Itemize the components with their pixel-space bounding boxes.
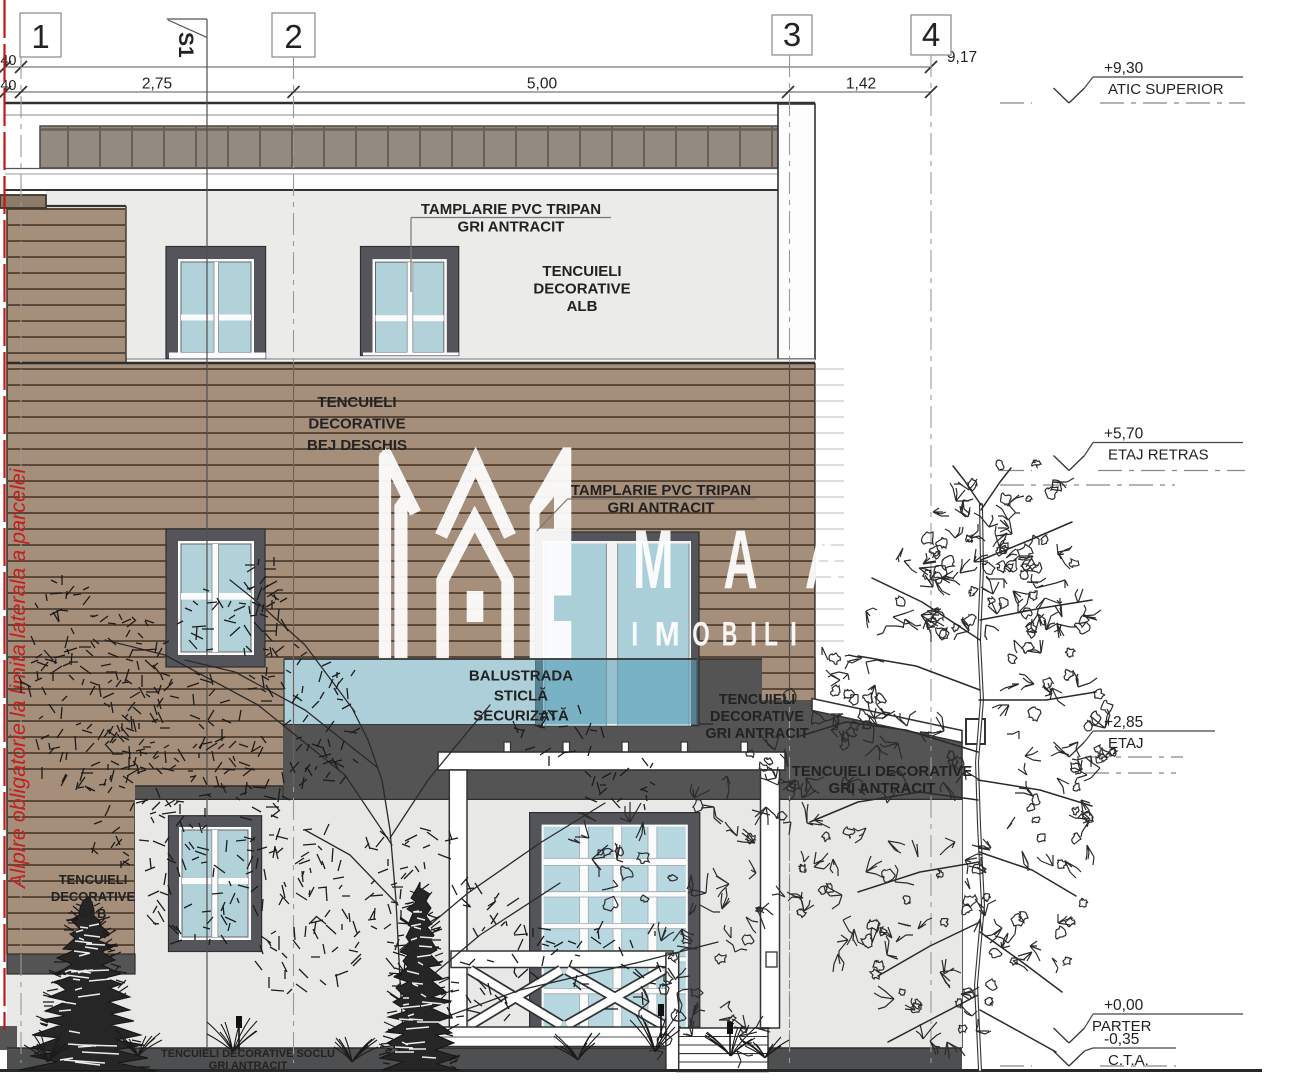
svg-text:1,42: 1,42 (846, 76, 876, 93)
svg-text:S1: S1 (174, 32, 197, 58)
svg-text:DECORATIVE: DECORATIVE (308, 416, 405, 433)
svg-text:ATIC SUPERIOR: ATIC SUPERIOR (1108, 81, 1224, 98)
svg-text:TENCUIELI: TENCUIELI (542, 263, 621, 280)
svg-text:BEJ DESCHIS: BEJ DESCHIS (307, 437, 407, 454)
svg-text:TENCUIELI: TENCUIELI (59, 872, 128, 887)
svg-text:DECORATIVE: DECORATIVE (533, 281, 630, 298)
svg-text:4: 4 (922, 16, 940, 53)
svg-text:R: R (889, 616, 906, 654)
svg-text:3: 3 (783, 16, 801, 53)
svg-text:DECORATIVE: DECORATIVE (710, 709, 804, 725)
svg-text:BALUSTRADA: BALUSTRADA (469, 668, 573, 685)
svg-text:ALB: ALB (567, 298, 598, 315)
svg-text:GRI ANTRACIT: GRI ANTRACIT (705, 726, 809, 742)
svg-text:SECURIZATĂ: SECURIZATĂ (473, 708, 569, 725)
svg-text:GRI ANTRACIT: GRI ANTRACIT (829, 780, 936, 797)
svg-text:ALB: ALB (80, 906, 107, 921)
svg-text:40: 40 (0, 53, 16, 69)
svg-text:STICLĂ: STICLĂ (494, 688, 548, 705)
svg-text:DECORATIVE: DECORATIVE (51, 889, 136, 904)
svg-text:I: I (631, 616, 638, 654)
svg-text:1: 1 (31, 18, 49, 55)
svg-text:GRI ANTRACIT: GRI ANTRACIT (209, 1060, 288, 1072)
svg-text:+0,00: +0,00 (1104, 997, 1144, 1014)
svg-text:TENCUIELI: TENCUIELI (719, 692, 796, 708)
svg-text:TENCUIELI DECORATIVE: TENCUIELI DECORATIVE (792, 763, 973, 780)
svg-text:L: L (764, 616, 778, 654)
svg-text:B: B (722, 616, 737, 654)
svg-text:5,00: 5,00 (527, 76, 558, 93)
svg-text:40: 40 (0, 78, 16, 94)
svg-text:I: I (790, 616, 797, 654)
svg-text:-0,35: -0,35 (1104, 1031, 1139, 1048)
svg-text:O: O (692, 616, 709, 654)
svg-text:A: A (805, 512, 842, 606)
svg-text:TAMPLARIE PVC TRIPAN: TAMPLARIE PVC TRIPAN (421, 201, 601, 218)
svg-text:M: M (633, 512, 674, 606)
svg-text:2: 2 (284, 18, 302, 55)
svg-text:GRI ANTRACIT: GRI ANTRACIT (458, 219, 565, 236)
svg-text:TENCUIELI: TENCUIELI (317, 394, 396, 411)
svg-text:Alipire obligatorie la limita: Alipire obligatorie la limita laterala a… (6, 467, 30, 890)
svg-text:+5,70: +5,70 (1104, 426, 1144, 443)
svg-text:M: M (655, 615, 680, 653)
svg-text:TENCUIELI DECORATIVE SOCLU: TENCUIELI DECORATIVE SOCLU (161, 1048, 335, 1060)
svg-text:ETAJ RETRAS: ETAJ RETRAS (1108, 447, 1209, 464)
svg-text:ETAJ: ETAJ (1108, 735, 1144, 752)
svg-text:2,75: 2,75 (142, 76, 172, 93)
svg-text:+9,30: +9,30 (1104, 60, 1144, 77)
svg-text:I: I (750, 616, 757, 654)
svg-text:A: A (723, 513, 757, 606)
svg-text:GRI ANTRACIT: GRI ANTRACIT (608, 500, 715, 517)
svg-text:TAMPLARIE PVC TRIPAN: TAMPLARIE PVC TRIPAN (571, 482, 751, 499)
